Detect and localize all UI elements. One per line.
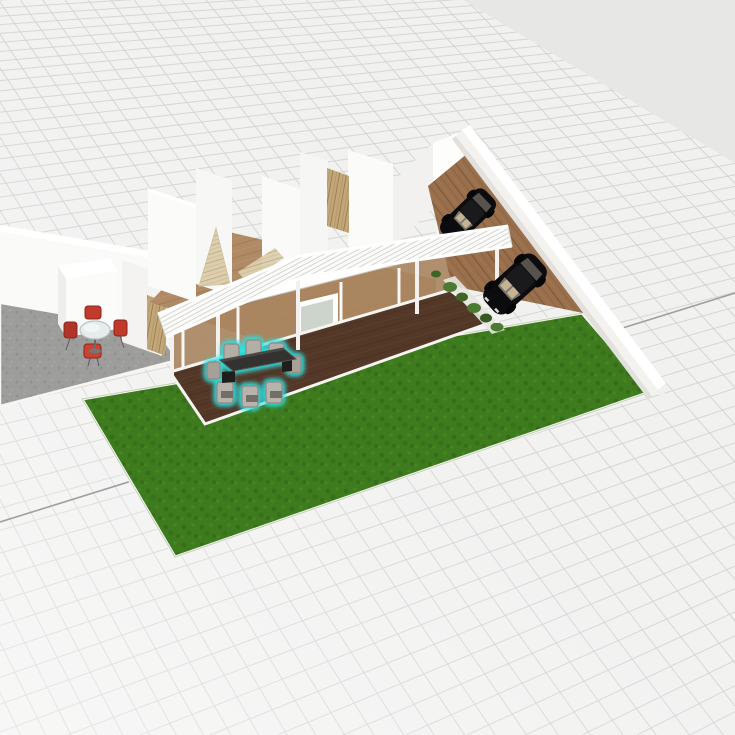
design-canvas[interactable] (0, 0, 735, 735)
rear-wood-door[interactable] (327, 168, 349, 233)
scene-svg (0, 0, 735, 735)
